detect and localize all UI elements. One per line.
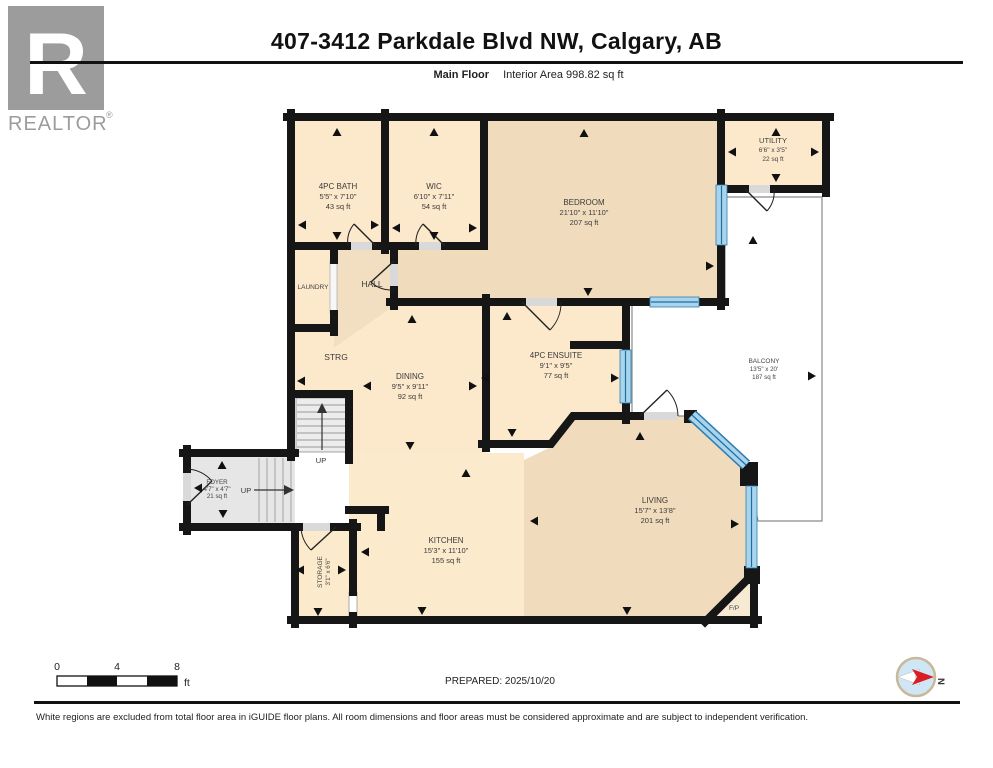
svg-text:4PC ENSUITE: 4PC ENSUITE <box>530 351 582 360</box>
compass-icon: N <box>897 658 946 696</box>
footer-disclaimer: White regions are excluded from total fl… <box>36 712 973 723</box>
svg-text:13'5" x 20': 13'5" x 20' <box>750 366 778 373</box>
label-up-foyer: UP <box>241 486 251 495</box>
svg-text:15'7" x 13'8": 15'7" x 13'8" <box>634 506 675 515</box>
scale-tick-4: 4 <box>114 661 120 673</box>
svg-text:155 sq ft: 155 sq ft <box>432 556 462 565</box>
label-hall: HALL <box>361 279 383 289</box>
svg-text:FOYER: FOYER <box>206 479 228 486</box>
prepared-date: PREPARED: 2025/10/20 <box>445 676 555 687</box>
svg-text:22 sq ft: 22 sq ft <box>762 156 784 163</box>
svg-text:77 sq ft: 77 sq ft <box>544 371 570 380</box>
svg-text:187 sq ft: 187 sq ft <box>752 374 776 381</box>
label-utility: UTILITY 6'6" x 3'5" 22 sq ft <box>759 136 788 163</box>
svg-text:DINING: DINING <box>396 372 424 381</box>
svg-text:BALCONY: BALCONY <box>748 358 780 365</box>
scale-unit: ft <box>184 677 190 689</box>
svg-text:201 sq ft: 201 sq ft <box>641 516 671 525</box>
svg-text:4'7" x 4'7": 4'7" x 4'7" <box>203 486 230 493</box>
svg-text:9'5" x 9'11": 9'5" x 9'11" <box>392 382 429 391</box>
svg-text:9'1" x 9'5": 9'1" x 9'5" <box>540 361 573 370</box>
svg-text:3'1" x 6'6": 3'1" x 6'6" <box>325 558 332 585</box>
label-up-flight: UP <box>316 456 326 465</box>
label-laundry: LAUNDRY <box>298 284 330 291</box>
label-storage: STORAGE 3'1" x 6'6" <box>317 556 332 588</box>
svg-text:5'5" x 7'10": 5'5" x 7'10" <box>320 192 357 201</box>
room-living-fill <box>524 416 750 624</box>
laundry-bifold-door <box>330 261 337 313</box>
svg-text:54 sq ft: 54 sq ft <box>422 202 448 211</box>
svg-text:6'6" x 3'5": 6'6" x 3'5" <box>759 147 788 154</box>
scale-tick-0: 0 <box>54 661 60 673</box>
svg-text:STORAGE: STORAGE <box>317 556 324 588</box>
svg-text:UTILITY: UTILITY <box>759 136 787 145</box>
svg-text:92 sq ft: 92 sq ft <box>398 392 424 401</box>
footer-divider <box>34 701 960 704</box>
compass-north-label: N <box>935 678 946 685</box>
svg-text:21 sq ft: 21 sq ft <box>207 493 228 500</box>
label-balcony: BALCONY 13'5" x 20' 187 sq ft <box>748 358 780 381</box>
svg-text:43 sq ft: 43 sq ft <box>326 202 352 211</box>
floorplan-page: R REALTOR ® 407-3412 Parkdale Blvd NW, C… <box>0 0 993 768</box>
scale-tick-8: 8 <box>174 661 180 673</box>
svg-text:4PC BATH: 4PC BATH <box>319 182 358 191</box>
room-kitchen-storage-fill <box>291 453 524 624</box>
floorplan-svg: 4PC BATH 5'5" x 7'10" 43 sq ft WIC 6'10"… <box>0 0 993 768</box>
svg-text:BEDROOM: BEDROOM <box>563 198 605 207</box>
label-strg: STRG <box>324 352 348 362</box>
svg-text:21'10" x 11'10": 21'10" x 11'10" <box>560 208 609 217</box>
svg-text:207 sq ft: 207 sq ft <box>570 218 600 227</box>
svg-text:WIC: WIC <box>426 182 442 191</box>
svg-text:6'10" x 7'11": 6'10" x 7'11" <box>414 192 455 201</box>
svg-text:LIVING: LIVING <box>642 496 668 505</box>
label-foyer: FOYER 4'7" x 4'7" 21 sq ft <box>203 479 230 500</box>
scale-bar: 0 4 8 ft <box>54 661 190 689</box>
svg-text:KITCHEN: KITCHEN <box>428 536 463 545</box>
svg-text:15'3" x 11'10": 15'3" x 11'10" <box>424 546 469 555</box>
label-fireplace: F/P <box>729 605 739 612</box>
